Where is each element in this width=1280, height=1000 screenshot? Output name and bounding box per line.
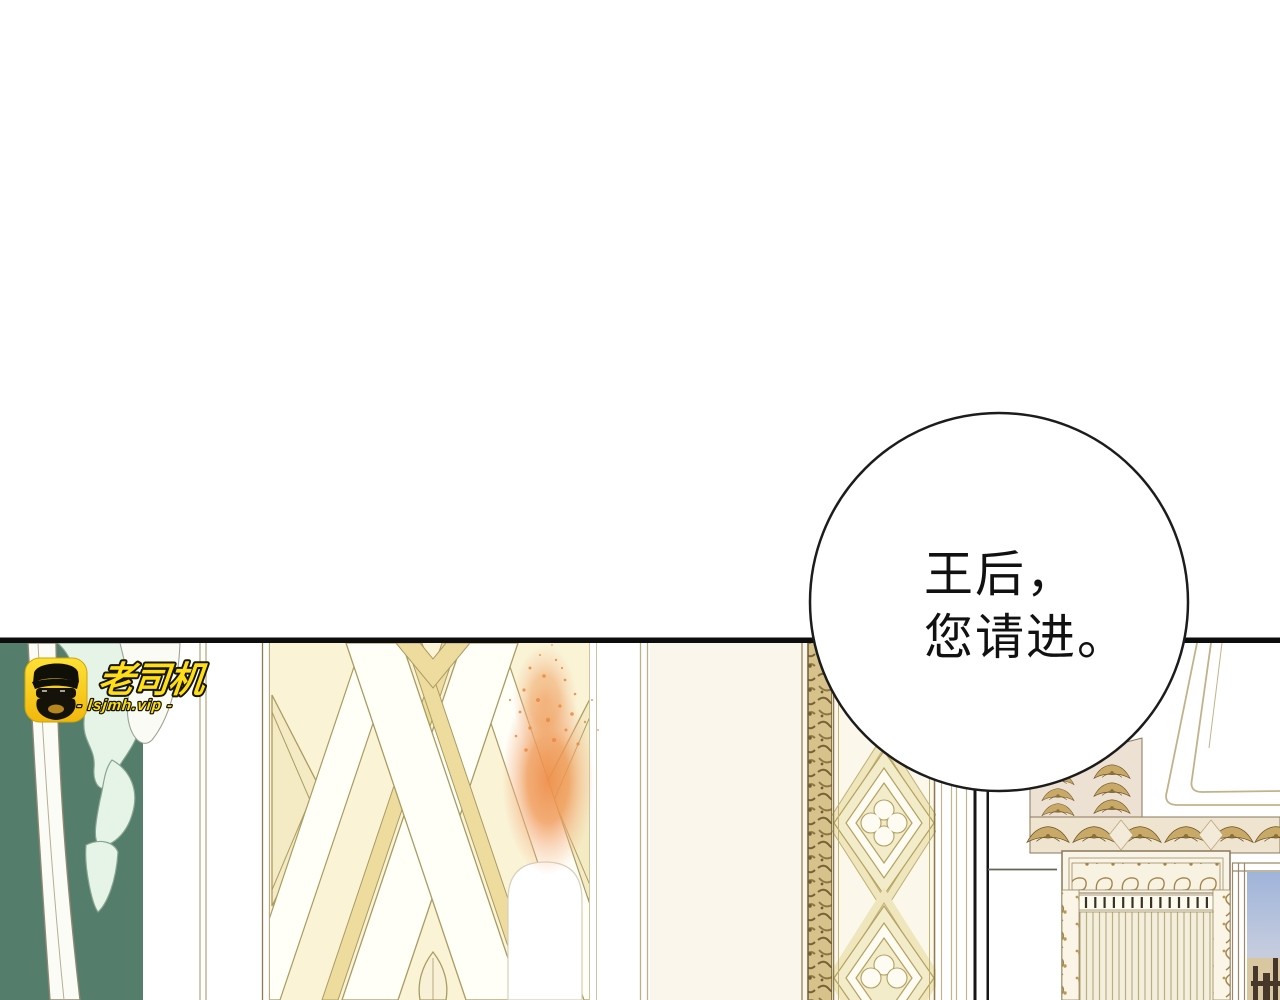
watermark-site: - lsjmh.vip - — [76, 697, 174, 714]
vine-border-right — [1213, 890, 1230, 1000]
white-column — [508, 862, 582, 1000]
fluted-columns — [1079, 912, 1215, 1000]
bubble-text-line-2: 您请进。 — [924, 611, 1128, 665]
speech-bubble: 王后， 您请进。 — [810, 413, 1188, 791]
vine-border-left — [1062, 890, 1079, 1000]
dentil-row — [1079, 895, 1215, 910]
scroll-frieze — [1072, 863, 1220, 890]
black-edge-line-2 — [987, 787, 990, 1000]
gold-frieze — [1027, 817, 1280, 853]
speech-bubble-circle — [810, 413, 1188, 791]
black-edge-line — [974, 786, 977, 1000]
driver-face-icon — [32, 663, 79, 720]
bubble-text-line-1: 王后， — [924, 548, 1077, 602]
comic-page: 王后， 您请进。 老司机 - lsjmh.vip - — [0, 0, 1280, 1000]
watermark-title: 老司机 — [96, 659, 208, 700]
doorway — [1062, 851, 1230, 1000]
gold-carved-strip — [808, 643, 832, 1000]
